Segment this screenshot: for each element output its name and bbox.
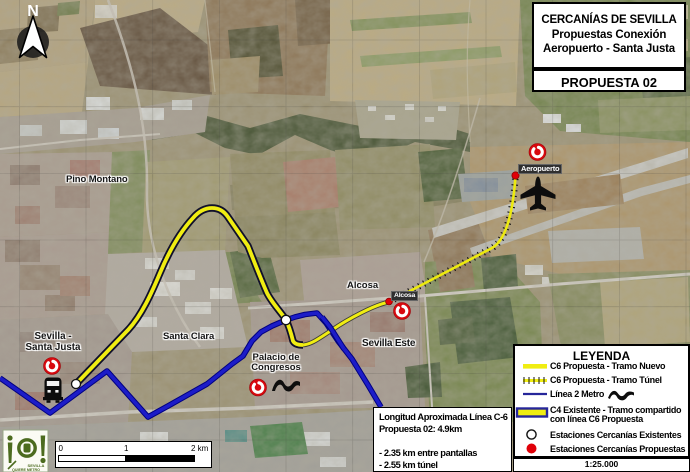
svg-text:N: N — [27, 3, 39, 20]
svg-text:QUIERE METRO: QUIERE METRO — [12, 468, 40, 472]
